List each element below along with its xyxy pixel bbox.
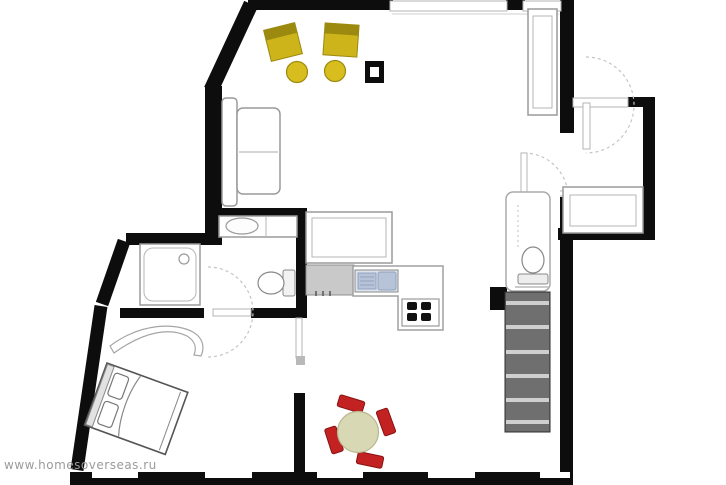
vanity-basin: [226, 218, 258, 234]
watermark: www.homesoverseas.ru: [4, 458, 157, 472]
tall-cabinet: [528, 9, 557, 115]
pouf-2: [325, 61, 346, 82]
stove-burner-1: [407, 302, 417, 310]
wall-right-lower: [560, 240, 573, 477]
wc-door-leaf: [521, 153, 527, 197]
wall-top-pier: [506, 0, 525, 10]
column: [365, 61, 384, 83]
kitchen-island: [306, 212, 392, 263]
armchair-1: [264, 23, 303, 62]
wall-entry-right: [643, 97, 655, 240]
bed-frame: [84, 363, 187, 454]
dining-chair-4: [356, 451, 384, 468]
stairs-tread-3: [506, 350, 549, 354]
shower-tray: [140, 244, 200, 305]
bathroom-door-leaf: [213, 309, 251, 316]
stairs-tread-6: [506, 420, 549, 424]
stove-burner-4: [421, 313, 431, 321]
stairs-body: [505, 292, 550, 432]
stairs-tread-4: [506, 374, 549, 378]
bathroom-toilet-tank: [283, 270, 295, 296]
wall-diagonal-bath: [102, 241, 124, 304]
staircase: [505, 292, 550, 432]
wc-and-stairs: [505, 192, 550, 432]
shower-cabin: [140, 244, 200, 305]
worktop-gray: [306, 265, 354, 295]
wall-diagonal-top-left: [211, 4, 251, 90]
wall-bath-bottom-left: [120, 308, 204, 318]
tall-cabinet-outer: [528, 9, 557, 115]
floor-plan-image: www.homesoverseas.ru: [0, 0, 726, 485]
bathroom: [140, 216, 297, 305]
sofa-seat: [237, 108, 280, 194]
wall-top: [248, 0, 393, 10]
stove: [402, 299, 439, 326]
kitchen: [306, 212, 443, 330]
sofa: [222, 98, 280, 206]
kitchen-sink: [355, 270, 398, 292]
dining-chair-1: [337, 394, 365, 413]
pouf-1: [287, 62, 308, 83]
dining-chair-1-seat: [337, 394, 365, 413]
wc-door-arc: [524, 153, 568, 197]
wall-bath-top-left: [126, 233, 220, 245]
sofa-back: [222, 98, 237, 206]
wall-stairs-stub: [490, 287, 507, 310]
bathroom-toilet: [258, 270, 295, 296]
entry-door-threshold: [573, 98, 628, 107]
stairs-tread-5: [506, 398, 549, 402]
dining-set: [324, 394, 396, 468]
wc-toilet-tank: [518, 274, 548, 284]
wall-inner-lower: [294, 393, 305, 477]
wall-right-upper: [560, 0, 574, 133]
wc-toilet-bowl: [522, 247, 544, 273]
hall-door-leaf: [296, 318, 302, 358]
shower-drain: [179, 254, 189, 264]
bathroom-toilet-bowl: [258, 272, 284, 294]
window-top-1: [390, 1, 507, 11]
window-bottom-3: [317, 472, 363, 478]
entry-door-leaf: [583, 103, 590, 149]
dining-table: [338, 412, 379, 453]
window-bottom-5: [540, 472, 570, 478]
window-bottom-2: [205, 472, 252, 478]
stairs-tread-1: [506, 301, 549, 305]
curved-shelf: [110, 326, 203, 356]
dining-chair-4-seat: [356, 451, 384, 468]
entry-hall: [563, 187, 643, 233]
stove-burner-2: [421, 302, 431, 310]
column-inner: [370, 67, 379, 77]
window-bottom-1: [92, 472, 138, 478]
double-bed: [84, 363, 187, 454]
stairs-tread-2: [506, 325, 549, 329]
sink-bowl: [378, 272, 396, 290]
armchair-2: [323, 23, 359, 57]
floor-plan: [0, 0, 726, 485]
living-area: [222, 9, 557, 206]
window-bottom-4: [428, 472, 475, 478]
bedroom: [84, 326, 203, 454]
vanity-sink: [219, 216, 297, 237]
hall-door-knob: [296, 356, 305, 365]
armchair-2-seat: [323, 33, 358, 57]
stove-burner-3: [407, 313, 417, 321]
